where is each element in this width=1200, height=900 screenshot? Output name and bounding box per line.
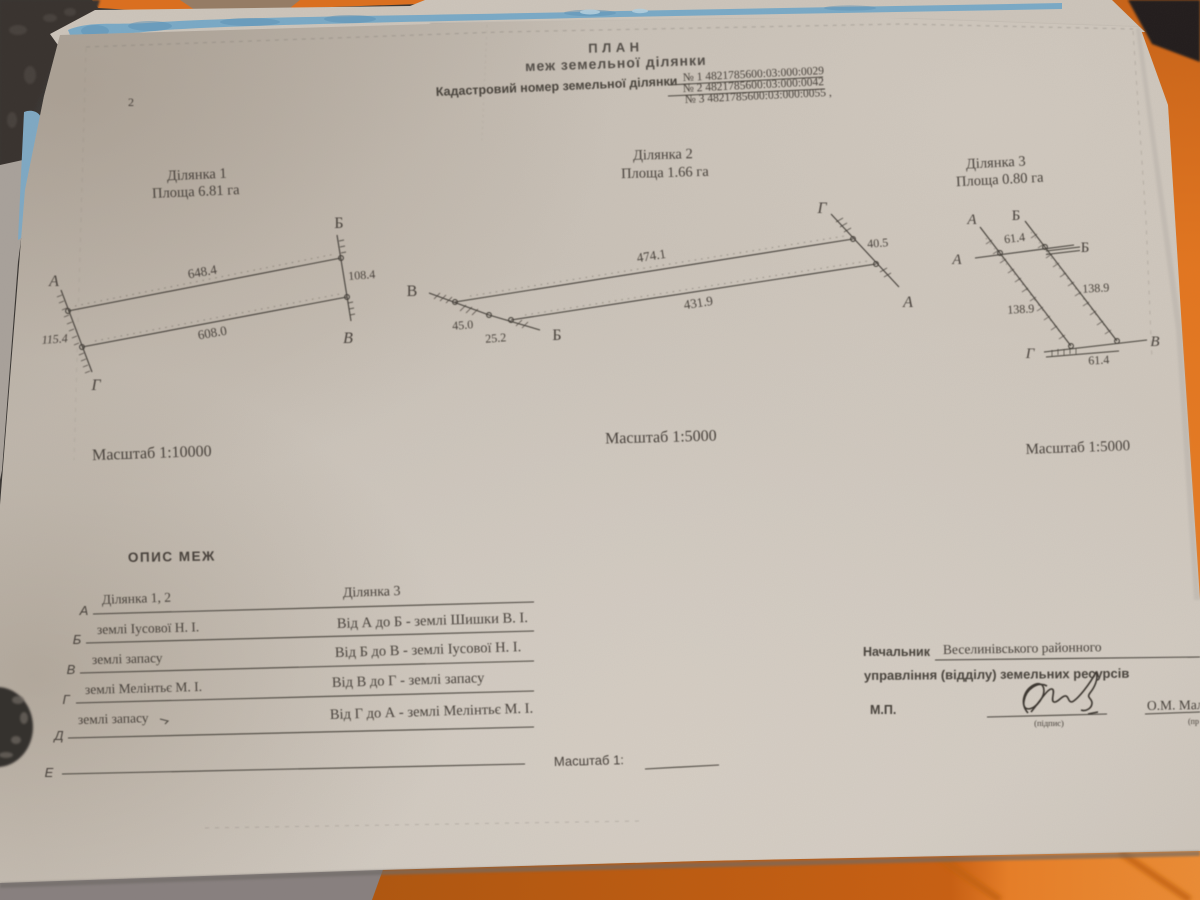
svg-text:А: А [79,603,89,618]
svg-text:Д: Д [52,728,63,743]
svg-text:61.4: 61.4 [1003,230,1026,246]
svg-text:Площа 1.66 га: Площа 1.66 га [621,164,710,182]
svg-text:Ділянка 3: Ділянка 3 [966,153,1026,172]
svg-text:Б: Б [73,632,82,647]
svg-text:Масштаб 1:: Масштаб 1: [554,752,624,769]
svg-text:землі Мелінтьє М. І.: землі Мелінтьє М. І. [85,679,202,697]
svg-text:25.2: 25.2 [485,330,507,345]
svg-text:ОПИС МЕЖ: ОПИС МЕЖ [128,548,216,565]
svg-text:Б: Б [1012,208,1021,224]
svg-text:138.9: 138.9 [1082,280,1110,295]
svg-text:землі запасу: землі запасу [92,650,163,667]
svg-text:Ділянка 1, 2: Ділянка 1, 2 [102,590,172,607]
svg-text:Б: Б [552,327,561,344]
svg-text:Ділянка 1: Ділянка 1 [167,166,227,185]
svg-text:землі запасу: землі запасу [78,710,149,727]
svg-text:М.П.: М.П. [870,703,896,717]
svg-text:Ділянка 3: Ділянка 3 [343,584,401,601]
svg-text:(підпис): (підпис) [1034,718,1064,728]
svg-text:А: А [902,294,913,311]
svg-text:61.4: 61.4 [1088,352,1110,367]
svg-text:управління (відділу) земельних: управління (відділу) земельних ресурсів [864,666,1129,683]
svg-text:землі Іусової Н. І.: землі Іусової Н. І. [97,619,200,637]
svg-text:В: В [1150,334,1159,350]
svg-text:Масштаб 1:5000: Масштаб 1:5000 [605,428,717,448]
svg-text:Г: Г [816,200,827,217]
svg-text:Г: Г [1025,346,1036,362]
svg-text:2: 2 [128,95,134,109]
svg-text:О.М. Мал: О.М. Мал [1147,697,1200,713]
svg-text:В: В [343,330,353,347]
svg-text:А: А [966,212,977,228]
svg-text:Г: Г [90,377,101,394]
svg-text:ПЛАН: ПЛАН [588,39,644,55]
svg-text:В: В [67,662,76,677]
svg-text:115.4: 115.4 [41,331,68,347]
svg-text:Б: Б [334,215,343,232]
svg-text:Г: Г [62,692,70,707]
svg-text:Е: Е [45,765,54,780]
svg-text:45.0: 45.0 [452,317,474,332]
svg-text:138.9: 138.9 [1007,301,1035,316]
svg-text:Ділянка 2: Ділянка 2 [633,146,693,164]
svg-text:Б: Б [1081,240,1090,256]
svg-text:(пр: (пр [1188,717,1199,726]
svg-text:В: В [407,283,418,300]
svg-text:Начальник: Начальник [863,645,931,659]
svg-text:А: А [48,273,59,290]
svg-text:Веселинівського районного: Веселинівського районного [943,639,1102,657]
svg-text:А: А [951,252,962,268]
svg-text:108.4: 108.4 [348,267,376,283]
svg-text:40.5: 40.5 [867,235,889,250]
